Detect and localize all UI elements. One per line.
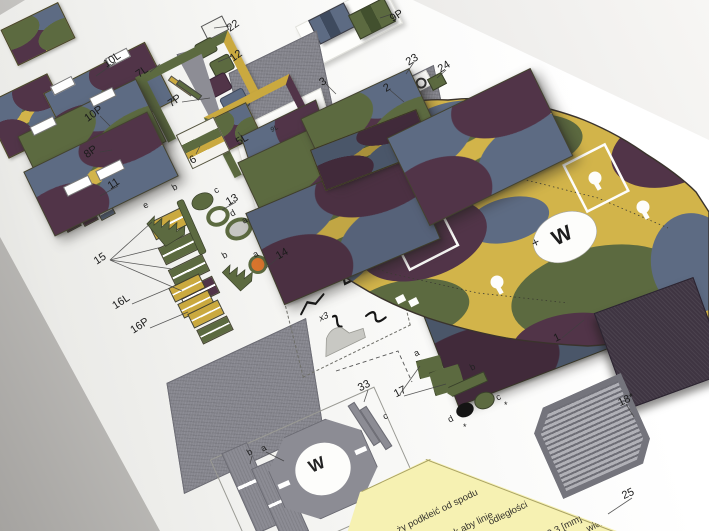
asterisk-mark: * xyxy=(463,422,467,432)
part-label-9l: 9L xyxy=(270,124,279,134)
part-13d-ring xyxy=(206,205,231,228)
notch xyxy=(278,480,291,489)
glue-tab xyxy=(63,175,93,197)
notch xyxy=(354,446,367,455)
asterisk-mark: * xyxy=(504,400,508,410)
note-line: 0,3 [mm] xyxy=(545,513,583,531)
note-line: odległości xyxy=(487,499,530,527)
render-viewport[interactable]: 9P 22 9L 12 10L 7L 7P 10P 8P 5L 6 xyxy=(0,0,709,531)
